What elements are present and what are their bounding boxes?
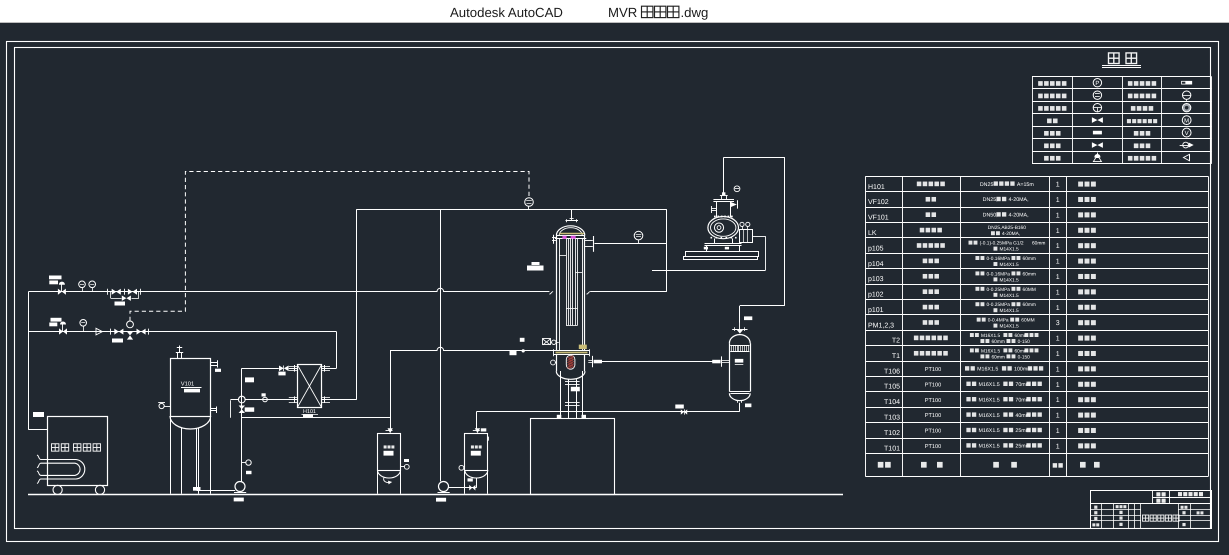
svg-text:1: 1 [1056,289,1060,296]
svg-text:VF101: VF101 [868,215,889,222]
svg-text:DN25: DN25 [980,182,994,188]
svg-text:1: 1 [1056,228,1060,235]
svg-text:60mm: 60mm [992,354,1005,360]
svg-text:0-150: 0-150 [1018,354,1031,360]
svg-text:PT100: PT100 [925,398,941,404]
svg-text:T101: T101 [884,445,900,452]
svg-text:4-20MA,: 4-20MA, [1009,213,1029,219]
svg-text:1: 1 [1056,351,1060,358]
svg-text:M16X1.5: M16X1.5 [978,444,999,450]
svg-text:PT100: PT100 [925,382,941,388]
svg-text:1: 1 [1056,259,1060,266]
svg-text:1: 1 [1056,382,1060,389]
svg-text:3: 3 [1056,320,1060,327]
svg-text:0-0.25MPa: 0-0.25MPa [987,287,1011,293]
svg-text:H101: H101 [868,184,885,191]
svg-text:M16X1.5: M16X1.5 [978,428,999,434]
svg-text:M: M [1184,117,1189,124]
svg-text:V: V [1185,130,1189,137]
svg-text:T104: T104 [884,399,900,406]
svg-text:M14X1.5: M14X1.5 [1000,247,1020,253]
svg-text:T103: T103 [884,415,900,422]
svg-text:M16X1.5: M16X1.5 [981,333,1001,339]
svg-text:MVR: MVR [608,5,637,20]
svg-text:4-20MA,: 4-20MA, [1002,231,1020,237]
svg-text:T102: T102 [884,430,900,437]
svg-text:1: 1 [1056,443,1060,450]
svg-text:.dwg: .dwg [681,5,709,20]
svg-text:M14X1.5: M14X1.5 [1000,324,1020,330]
svg-text:DN50,: DN50, [983,213,998,219]
svg-text:T105: T105 [884,384,900,391]
svg-text:M14X1.5: M14X1.5 [1000,293,1020,299]
svg-text:M14X1.5: M14X1.5 [1000,308,1020,314]
svg-text:M14X1.5: M14X1.5 [1000,262,1020,268]
svg-text:M16X1.5: M16X1.5 [978,382,999,388]
svg-text:1: 1 [1056,305,1060,312]
svg-text:p104: p104 [868,261,884,268]
svg-text:1: 1 [1056,336,1060,343]
svg-text:60mm: 60mm [1023,256,1036,262]
svg-text:P: P [1095,80,1099,87]
svg-text:60mm: 60mm [1032,241,1045,247]
svg-text:PT100: PT100 [925,367,941,373]
svg-text:(-0.1)-0.25MPa G1/2: (-0.1)-0.25MPa G1/2 [980,241,1024,247]
svg-text:M14X1.5: M14X1.5 [1000,277,1020,283]
svg-text:T1: T1 [892,353,900,360]
svg-text:1: 1 [1056,413,1060,420]
svg-text:M16X1.5: M16X1.5 [981,348,1001,354]
svg-text:60MM: 60MM [1023,287,1036,293]
svg-text:1: 1 [1056,212,1060,219]
svg-text:p102: p102 [868,292,884,299]
svg-text:1: 1 [1056,366,1060,373]
svg-text:DN25,: DN25, [983,197,998,203]
svg-text:PT100: PT100 [925,413,941,419]
svg-text:V101: V101 [181,381,195,388]
svg-text:60MM: 60MM [1021,318,1034,324]
svg-text:1: 1 [1056,243,1060,250]
svg-text:M16X1.5: M16X1.5 [977,367,998,373]
svg-text:T106: T106 [884,368,900,375]
svg-text:1: 1 [1056,397,1060,404]
svg-text:0-0.16MPa: 0-0.16MPa [987,271,1011,277]
svg-text:LK: LK [868,230,877,237]
svg-text:Autodesk AutoCAD: Autodesk AutoCAD [450,5,563,20]
svg-text:60mm: 60mm [992,339,1005,345]
svg-text:DN25,AB25-B160: DN25,AB25-B160 [988,225,1026,231]
svg-text:A=15m: A=15m [1017,182,1035,188]
svg-text:p103: p103 [868,276,884,283]
svg-text:0-0.25MPa: 0-0.25MPa [987,302,1011,308]
svg-text:PT100: PT100 [925,444,941,450]
svg-text:1: 1 [1056,182,1060,189]
svg-text:T2: T2 [892,338,900,345]
svg-text:60mm: 60mm [1023,302,1036,308]
svg-text:0-0.4MPa: 0-0.4MPa [988,318,1009,324]
svg-text:p101: p101 [868,307,884,314]
svg-text:p105: p105 [868,245,884,252]
svg-text:M16X1.5: M16X1.5 [978,397,999,403]
svg-text:VF102: VF102 [868,199,889,206]
svg-text:4-20MA,: 4-20MA, [1009,197,1029,203]
svg-text:0-0.16MPa: 0-0.16MPa [987,256,1011,262]
svg-text:PM1,2,3: PM1,2,3 [868,322,894,329]
svg-text:60mm: 60mm [1023,271,1036,277]
svg-text:M16X1.5: M16X1.5 [978,413,999,419]
svg-text:1: 1 [1056,274,1060,281]
svg-text:1: 1 [1056,197,1060,204]
svg-text:0-150: 0-150 [1018,339,1031,345]
svg-text:1: 1 [1056,428,1060,435]
svg-text:PT100: PT100 [925,429,941,435]
